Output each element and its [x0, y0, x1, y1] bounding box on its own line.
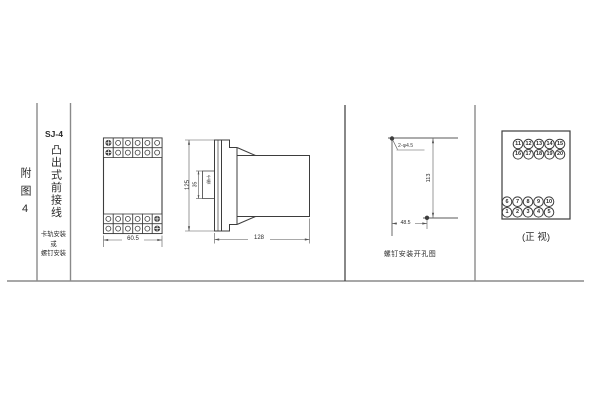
front-view-drawing — [104, 138, 163, 247]
terminal-number: 10 — [542, 197, 556, 207]
terminal-view-caption: (正 视) — [510, 229, 562, 243]
drill-holes-label: 2-φ4.5 — [398, 143, 413, 149]
side-height-dimension: 125 — [183, 175, 193, 195]
drill-diagram-caption: 螺钉安装开孔图 — [378, 249, 443, 259]
model-type-label: 凸出式前接线 — [48, 144, 64, 219]
drill-width-dimension: 48.5 — [397, 220, 415, 226]
technical-drawing-sheet: 附图4 SJ-4 凸出式前接线 卡轨安装 或 螺钉安装 60.5 125 35 … — [0, 0, 600, 400]
sheet-frame — [7, 103, 584, 281]
figure-number-label: 附图4 — [17, 167, 33, 222]
mounting-note-line: 或 — [50, 241, 56, 248]
side-view-drawing — [185, 140, 310, 244]
mounting-note-line: 卡轨安装 — [41, 231, 66, 238]
terminal-number: 20 — [553, 149, 567, 159]
terminal-number: 5 — [542, 207, 556, 217]
model-label: SJ-4 — [40, 129, 68, 139]
drill-height-dimension: 113 — [425, 169, 433, 187]
mounting-note-line: 螺钉安装 — [41, 250, 66, 257]
front-width-dimension: 60.5 — [122, 236, 144, 242]
mounting-note: 卡轨安装 或 螺钉安装 — [37, 231, 70, 257]
side-depth-dimension: 128 — [248, 235, 270, 241]
terminal-number: 15 — [553, 139, 567, 149]
slot-label: 卡槽 — [206, 175, 212, 184]
slot-dimension: 35 — [192, 178, 199, 192]
